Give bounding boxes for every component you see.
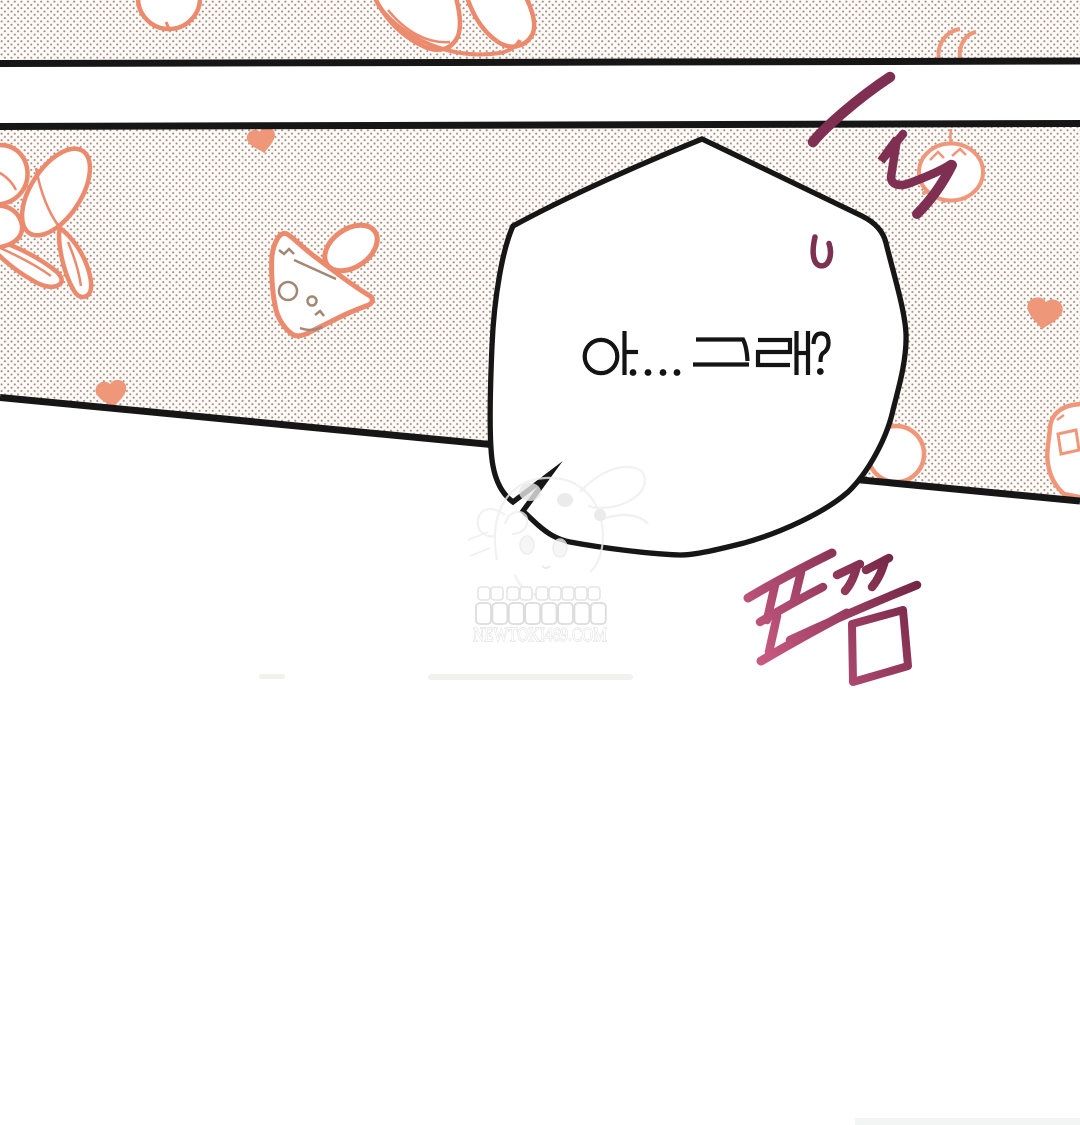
svg-text:NEWTOKI469.COM: NEWTOKI469.COM <box>473 625 607 646</box>
